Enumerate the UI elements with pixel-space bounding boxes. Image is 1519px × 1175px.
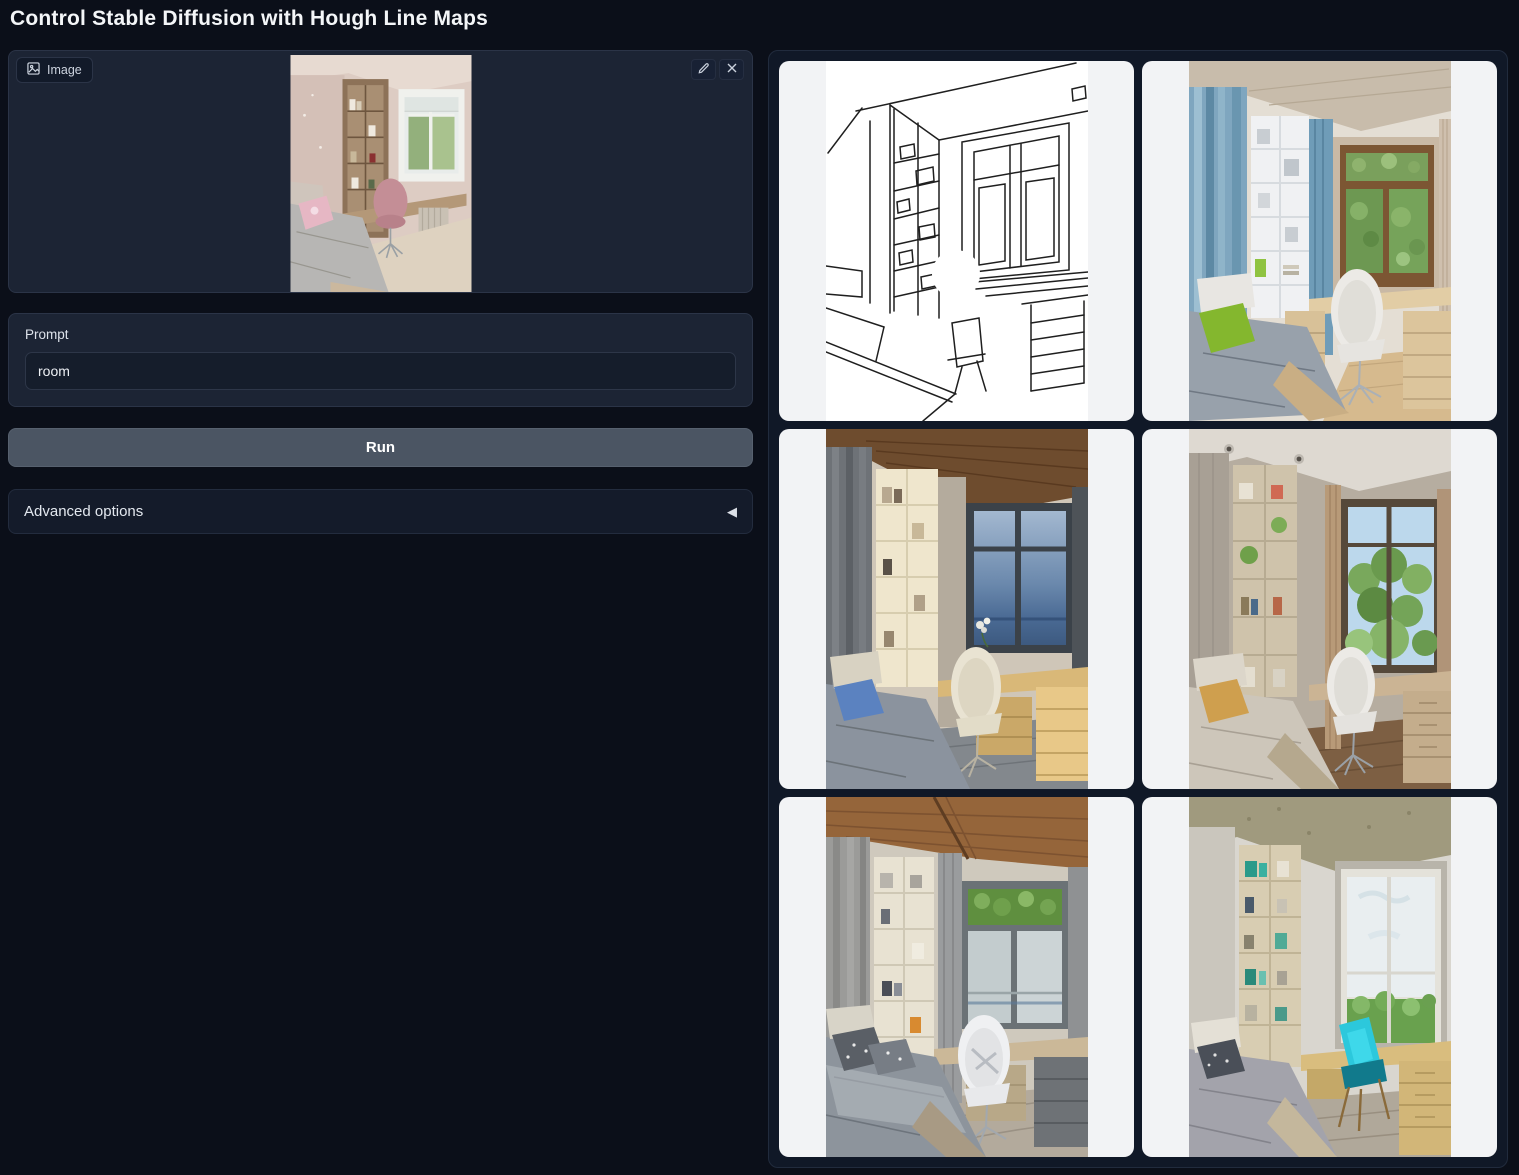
clear-image-button[interactable] [719,59,744,80]
generated-room-image-1 [1189,61,1451,421]
image-icon [27,62,40,78]
gallery-item-generated-2[interactable] [779,429,1134,789]
advanced-options-label: Advanced options [24,503,143,520]
image-upload-panel[interactable]: Image [8,50,753,293]
prompt-label: Prompt [25,327,736,342]
gallery-item-generated-1[interactable] [1142,61,1497,421]
generated-room-image-3 [1189,429,1451,789]
x-icon [726,62,738,77]
uploaded-room-photo [290,55,471,292]
run-button[interactable]: Run [8,428,753,467]
gallery-item-hough-map[interactable] [779,61,1134,421]
input-column: Image [8,50,753,534]
generated-room-image-4 [826,797,1088,1157]
generated-room-image-5 [1189,797,1451,1157]
image-input-label: Image [16,57,93,83]
gallery-item-generated-4[interactable] [779,797,1134,1157]
output-gallery [768,50,1508,1168]
gallery-item-generated-3[interactable] [1142,429,1497,789]
image-input-label-text: Image [47,63,82,77]
generated-room-image-2 [826,429,1088,789]
gallery-item-generated-5[interactable] [1142,797,1497,1157]
prompt-panel: Prompt [8,313,753,407]
pencil-icon [697,62,710,78]
collapse-left-triangle-icon: ◀ [727,504,737,520]
hough-line-map-image [826,61,1088,421]
edit-image-button[interactable] [691,59,716,80]
advanced-options-accordion[interactable]: Advanced options ◀ [8,489,753,534]
page-title: Control Stable Diffusion with Hough Line… [10,7,488,31]
prompt-input[interactable] [25,352,736,390]
